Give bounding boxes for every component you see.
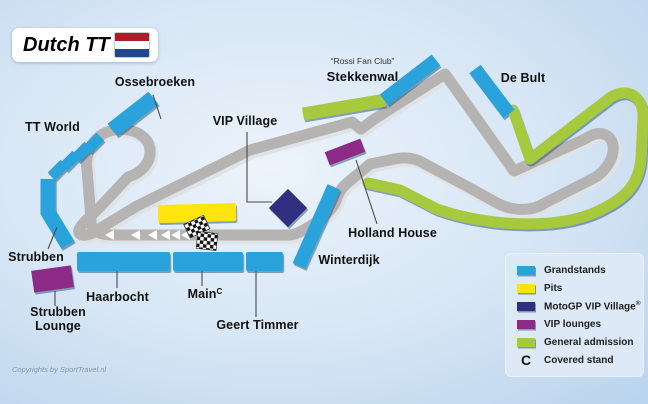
legend-item-motogp-vip-village: MotoGP VIP Village® [517, 297, 644, 315]
general-admission-swatch [517, 338, 535, 347]
label-haarbocht: Haarbocht [70, 290, 165, 304]
legend-panel: Grandstands Pits MotoGP VIP Village® VIP… [505, 253, 644, 377]
holland-house-lounge [325, 139, 365, 166]
label-tt-world: TT World [10, 120, 95, 134]
motogp-vip-village-building [269, 189, 307, 227]
covered-stand-symbol: C [517, 352, 535, 368]
label-strubben: Strubben [2, 250, 70, 264]
label-winterdijk: Winterdijk [303, 253, 395, 267]
legend-item-covered-stand: C Covered stand [517, 351, 644, 369]
label-stekkenwal: Stekkenwal [305, 70, 420, 85]
vip-lounges-swatch [517, 320, 535, 329]
page-title: Dutch TT [12, 34, 114, 57]
geert-timmer-grandstand [246, 252, 283, 271]
label-main: MainC [170, 287, 240, 301]
main-grandstand [173, 252, 243, 271]
label-holland-house: Holland House [340, 226, 445, 240]
label-vip-village: VIP Village [195, 114, 295, 128]
legend-item-grandstands: Grandstands [517, 261, 644, 279]
strubben-lounge-building [31, 265, 74, 292]
label-de-bult: De Bult [483, 71, 563, 85]
legend-item-vip-lounges: VIP lounges [517, 315, 644, 333]
haarbocht-grandstand [77, 252, 170, 271]
title-box: Dutch TT [12, 28, 158, 62]
pits-swatch [517, 284, 535, 293]
label-strubben-lounge: Strubben Lounge [14, 305, 102, 333]
label-ossebroeken: Ossebroeken [103, 75, 207, 89]
circuit-map: Dutch TT Ossebroeken TT World VIP Villag… [0, 0, 648, 404]
legend-item-general-admission: General admission [517, 333, 644, 351]
grandstands-swatch [517, 266, 535, 275]
netherlands-flag-icon [114, 32, 150, 58]
strubben-grandstand [48, 179, 68, 245]
stekkenwal-general-admission [303, 100, 385, 114]
legend-item-pits: Pits [517, 279, 644, 297]
copyright-note: Copyrights by SportTravel.nl [12, 365, 106, 374]
label-rossi-fan-club: “Rossi Fan Club” [310, 56, 415, 66]
vip-village-swatch [517, 302, 535, 311]
label-geert-timmer: Geert Timmer [200, 318, 315, 332]
